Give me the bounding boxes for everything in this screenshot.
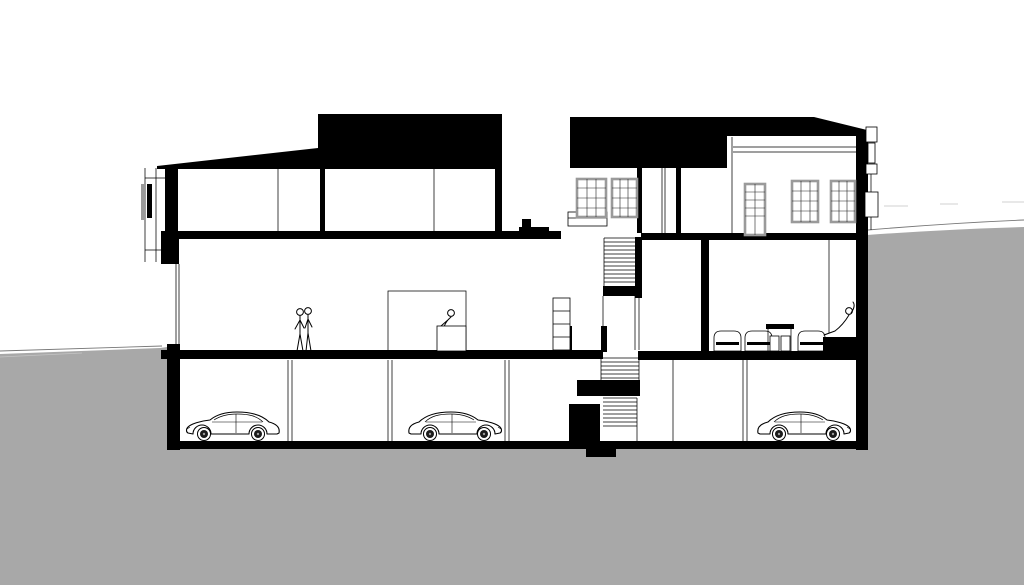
wall-left-core bbox=[495, 114, 502, 239]
main-slab-right bbox=[638, 351, 868, 360]
stair-base-mass bbox=[569, 404, 600, 441]
armchair-2-seat bbox=[747, 342, 770, 345]
wall-upper-left bbox=[320, 168, 325, 231]
stair-upper-landing bbox=[603, 286, 637, 296]
armchair-3-seat bbox=[800, 342, 823, 345]
stool-2 bbox=[781, 336, 790, 351]
wall-core-b bbox=[676, 166, 681, 233]
wing-window-2 bbox=[831, 181, 855, 222]
architectural-section-canvas bbox=[0, 0, 1024, 585]
armchair-1 bbox=[714, 331, 741, 351]
ladder-post bbox=[147, 184, 152, 218]
jamb-b bbox=[601, 326, 607, 352]
basement-slab bbox=[167, 441, 868, 449]
downpipe-bracket bbox=[865, 192, 878, 217]
desk-body bbox=[437, 326, 466, 351]
downpipe-shoe bbox=[866, 164, 877, 174]
left-roof-volume bbox=[318, 114, 502, 169]
armchair-3 bbox=[798, 331, 825, 351]
left-wall-upper bbox=[165, 166, 178, 233]
table-top bbox=[766, 324, 794, 329]
reception-desk bbox=[437, 326, 466, 351]
stair-window-1 bbox=[577, 179, 606, 217]
shelf-unit bbox=[553, 298, 570, 350]
main-slab-left bbox=[161, 350, 603, 359]
section-drawing bbox=[0, 0, 1024, 585]
stair-mid-landing bbox=[577, 380, 640, 396]
window-frame bbox=[831, 181, 855, 222]
center-roof-volume bbox=[570, 117, 727, 168]
wing-window-1 bbox=[792, 181, 818, 222]
downpipe-upper bbox=[868, 143, 875, 163]
wing-door bbox=[745, 184, 765, 235]
chaise-lounge bbox=[823, 337, 866, 352]
terrace-vent bbox=[522, 219, 531, 227]
stool-1 bbox=[770, 336, 779, 351]
stair-window-2 bbox=[612, 179, 637, 217]
elevator-pit bbox=[586, 441, 616, 457]
gutter-head bbox=[866, 127, 877, 142]
armchair-1-seat bbox=[716, 342, 739, 345]
ladder-panel bbox=[141, 184, 145, 220]
left-basement-wall bbox=[167, 344, 180, 450]
wall-lounge bbox=[701, 239, 709, 351]
right-wall bbox=[856, 131, 868, 450]
window-frame bbox=[792, 181, 818, 222]
